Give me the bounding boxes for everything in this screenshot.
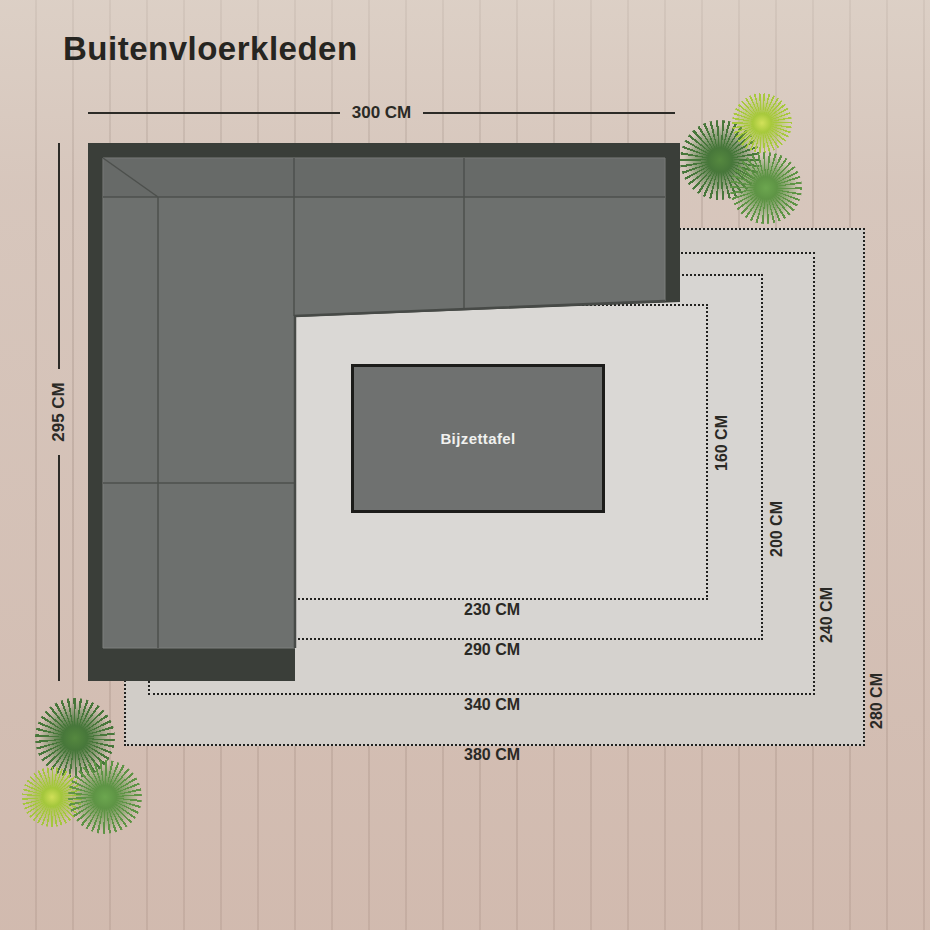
sofa-height-label-box: 295 CM — [46, 369, 72, 455]
deck-background: Buitenvloerkleden Bijzettafel 300 CM 295… — [0, 0, 930, 930]
sofa-width-label: 300 CM — [352, 103, 412, 123]
dimension-line — [58, 143, 60, 369]
dimension-line — [88, 112, 340, 114]
rug-380-height-label: 280 CM — [868, 673, 886, 729]
rug-340-width-label: 340 CM — [422, 696, 562, 714]
rug-340-height-label: 240 CM — [818, 587, 836, 643]
dimension-line — [58, 455, 60, 681]
rug-380-height-label-box: 280 CM — [864, 658, 890, 744]
sofa-height-dimension: 295 CM — [46, 143, 72, 681]
side-table: Bijzettafel — [351, 364, 605, 513]
rug-290-width-label: 290 CM — [422, 641, 562, 659]
plant-top-right — [675, 85, 820, 230]
sofa-back-shadow — [103, 158, 665, 197]
sofa-width-dimension: 300 CM — [88, 103, 675, 123]
sofa-height-label: 295 CM — [49, 382, 69, 442]
rug-230-height-label: 160 CM — [713, 415, 731, 471]
side-table-label: Bijzettafel — [440, 430, 515, 447]
rug-290-height-label-box: 200 CM — [764, 486, 790, 572]
page-title: Buitenvloerkleden — [63, 30, 358, 68]
dimension-line — [423, 112, 675, 114]
rug-340-height-label-box: 240 CM — [814, 572, 840, 658]
rug-290-height-label: 200 CM — [768, 501, 786, 557]
plant-bottom-left — [8, 688, 158, 838]
rug-230-height-label-box: 160 CM — [709, 400, 735, 486]
rug-380-width-label: 380 CM — [422, 746, 562, 764]
rug-230-width-label: 230 CM — [422, 601, 562, 619]
